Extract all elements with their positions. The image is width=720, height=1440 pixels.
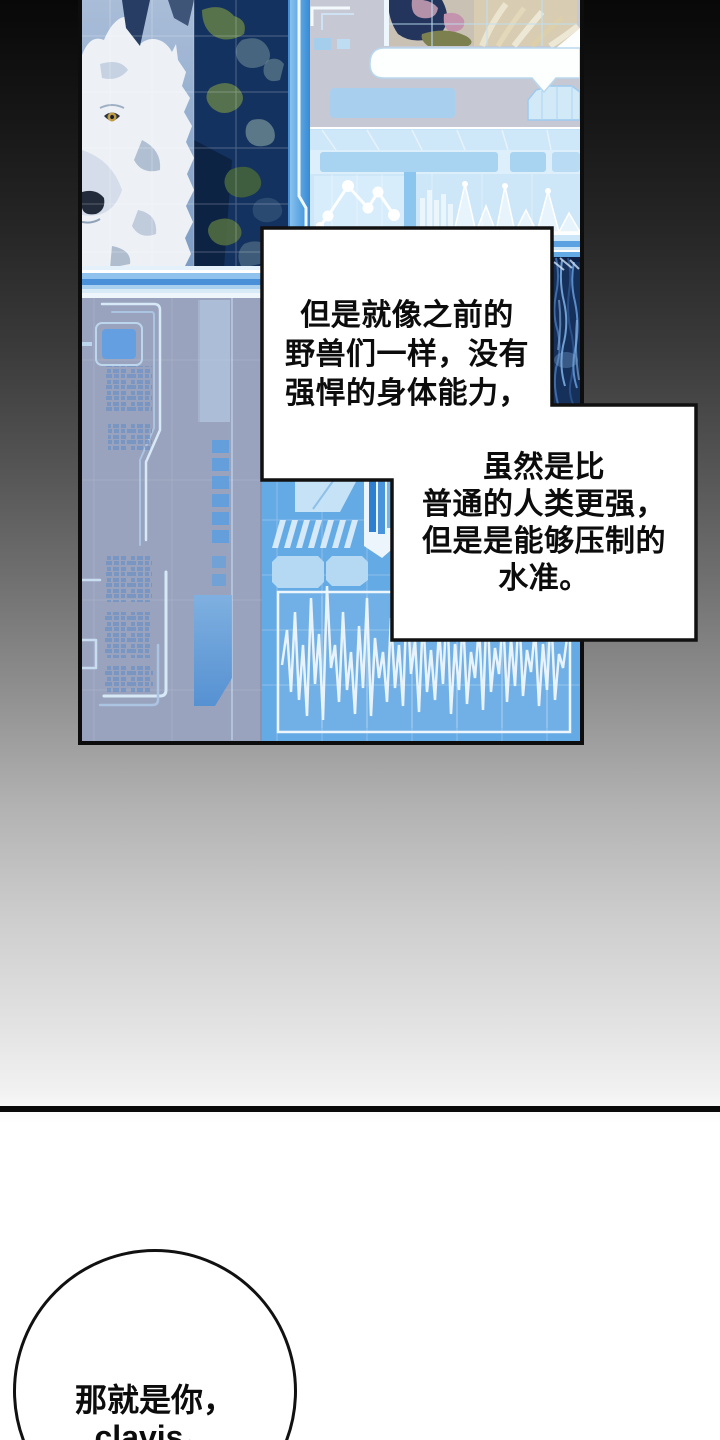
caption-line: 水准。 bbox=[498, 560, 590, 597]
hud-stripe-band-left bbox=[82, 266, 288, 298]
caption-line: 但是就像之前的 bbox=[300, 296, 514, 335]
speech-text: 那就是你， clavis。 bbox=[75, 1382, 235, 1440]
caption-box-2: 虽然是比 普通的人类更强， 但是是能够压制的 水准。 bbox=[392, 405, 696, 640]
caption-line: 野兽们一样，没有 bbox=[285, 335, 529, 374]
section-divider-line bbox=[0, 1106, 720, 1112]
speech-bubble: 那就是你， clavis。 bbox=[13, 1249, 297, 1440]
caption-line: 虽然是比 bbox=[483, 449, 605, 486]
wolf-illustration bbox=[82, 0, 207, 268]
comic-page: 但是就像之前的 野兽们一样，没有 强悍的身体能力， 虽然是比 普通的人类更强， … bbox=[0, 0, 720, 1440]
speech-line: clavis。 bbox=[75, 1419, 235, 1440]
hud-photo-inset bbox=[384, 0, 578, 46]
caption-line: 但是是能够压制的 bbox=[422, 523, 666, 560]
speech-line: 那就是你， bbox=[75, 1382, 235, 1419]
octagon-tiles bbox=[272, 556, 368, 588]
fur-texture bbox=[553, 257, 580, 405]
caption-line: 普通的人类更强， bbox=[422, 486, 666, 523]
